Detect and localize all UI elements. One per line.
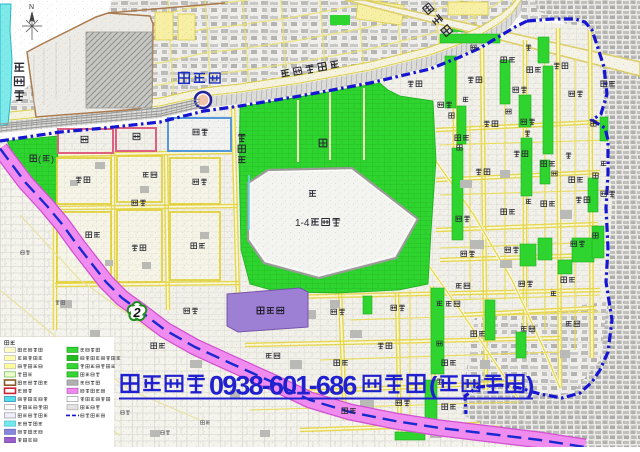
svg-text:N: N [29,4,34,11]
svg-text:): ) [51,154,54,164]
svg-text:0938-601-686: 0938-601-686 [209,371,357,401]
svg-text:1-4: 1-4 [295,218,310,229]
svg-text:(: ( [38,154,41,164]
svg-text:): ) [526,372,534,400]
svg-text:(: ( [429,372,438,400]
svg-text:2: 2 [132,305,141,320]
